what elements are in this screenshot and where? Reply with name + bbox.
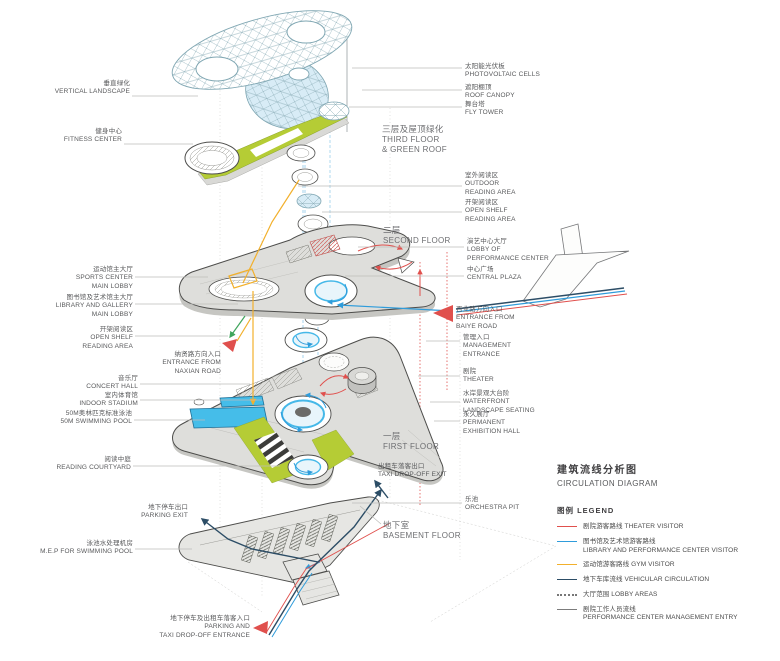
legend-swatch-library (557, 541, 577, 542)
label-orchestra-pit: 乐池ORCHESTRA PIT (465, 496, 519, 513)
circulation-diagram: 垂直绿化VERTICAL LANDSCAPE 健身中心FITNESS CENTE… (0, 0, 780, 661)
label-taxi-exit: 出租车落客出口TAXI DROP-OFF EXIT (378, 463, 447, 480)
floor-label-second: 二层SECOND FLOOR (383, 225, 451, 246)
label-concert-hall: 音乐厅CONCERT HALL (86, 375, 138, 392)
label-sports-lobby: 运动馆主大厅SPORTS CENTER MAIN LOBBY (76, 266, 133, 291)
label-fly-tower: 舞台塔FLY TOWER (465, 101, 503, 118)
label-outdoor-reading: 室外阅读区OUTDOOR READING AREA (465, 172, 516, 197)
naxian-entrance-arrow (222, 339, 237, 352)
baiye-entrance-arrow (433, 305, 453, 322)
label-parking-entrance: 地下停车及出租车落客入口PARKING AND TAXI DROP-OFF EN… (159, 615, 250, 640)
legend-title: 图例 LEGEND (557, 505, 775, 516)
floor-label-third: 三层及屋顶绿化THIRD FLOOR & GREEN ROOF (382, 124, 447, 156)
label-reading-courtyard: 阅读中庭READING COURTYARD (56, 456, 131, 473)
legend-swatch-management (557, 609, 577, 610)
canopy-hole (196, 57, 238, 81)
label-swimming-pool: 50M奥林匹克标准泳池50M SWIMMING POOL (60, 410, 132, 427)
label-open-shelf-left: 开架阅读区OPEN SHELF READING AREA (82, 326, 133, 351)
legend-swatch-theater (557, 526, 577, 527)
floor-label-basement: 地下室BASEMENT FLOOR (383, 520, 461, 541)
label-pv-cells: 太阳能光伏板PHOTOVOLTAIC CELLS (465, 63, 540, 80)
floor-label-first: 一层FIRST FLOOR (383, 431, 439, 452)
label-roof-canopy: 遮阳棚顶ROOF CANOPY (465, 84, 515, 101)
canopy-hole (289, 68, 309, 80)
label-vertical-landscape: 垂直绿化VERTICAL LANDSCAPE (55, 80, 130, 97)
label-library-gallery-lobby: 图书馆及艺术馆主大厅LIBRARY AND GALLERY MAIN LOBBY (56, 294, 133, 319)
label-perf-lobby: 演艺中心大厅LOBBY OF PERFORMANCE CENTER (467, 238, 549, 263)
label-open-shelf-right: 开架阅读区OPEN SHELF READING AREA (465, 199, 516, 224)
label-fitness-center: 健身中心FITNESS CENTER (64, 128, 122, 145)
legend-swatch-gym (557, 564, 577, 565)
label-theater: 剧院THEATER (463, 368, 494, 385)
green-route (230, 316, 245, 337)
legend: 图例 LEGEND 剧院游客路线 THEATER VISITOR 图书馆及艺术馆… (557, 505, 775, 629)
basement-plate (179, 497, 379, 605)
label-naxian-entrance: 纳贤路方向入口ENTRANCE FROM NAXIAN ROAD (162, 351, 221, 376)
label-central-plaza: 中心广场CENTRAL PLAZA (467, 266, 521, 283)
parking-entrance-arrow (253, 621, 268, 634)
label-indoor-stadium: 室内体育馆INDOOR STADIUM (79, 392, 138, 409)
legend-swatch-vehicular (557, 579, 577, 580)
label-permanent-hall: 永久展厅PERMANENT EXHIBITION HALL (463, 411, 520, 436)
label-baiye-entrance: 百业路方向入口ENTRANCE FROM BAIYE ROAD (456, 306, 515, 331)
legend-item-theater-visitor: 剧院游客路线 THEATER VISITOR (557, 523, 775, 532)
legend-item-vehicular: 地下车库流线 VEHICULAR CIRCULATION (557, 576, 775, 585)
label-management-entrance: 管理入口MANAGEMENT ENTRANCE (463, 334, 511, 359)
label-parking-exit: 地下停车出口PARKING EXIT (141, 504, 188, 521)
label-mep-pool: 泳池水处理机房M.E.P FOR SWIMMING POOL (40, 540, 133, 557)
diagram-title: 建筑流线分析图 CIRCULATION DIAGRAM (557, 461, 658, 488)
legend-item-management-entry: 剧院工作人员流线 PERFORMANCE CENTER MANAGEMENT E… (557, 606, 775, 624)
legend-item-lobby-areas: 大厅范围 LOBBY AREAS (557, 591, 775, 600)
legend-item-gym-visitor: 运动馆游客路线 GYM VISITOR (557, 561, 775, 570)
legend-swatch-lobby (557, 594, 577, 596)
legend-item-library-visitor: 图书馆及艺术馆游客路线 LIBRARY AND PERFORMANCE CENT… (557, 538, 775, 556)
canopy-hole (287, 21, 325, 43)
